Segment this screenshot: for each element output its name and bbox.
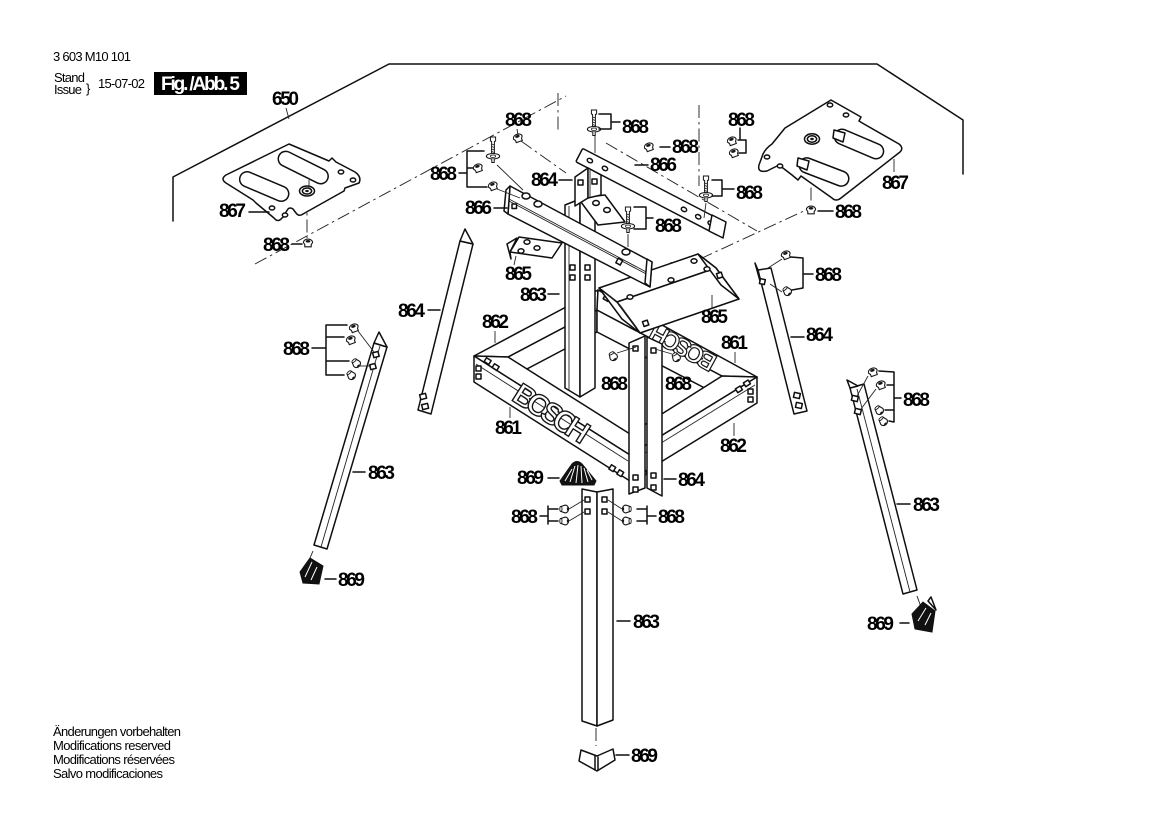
svg-text:862: 862: [720, 436, 747, 457]
svg-text:868: 868: [601, 374, 628, 395]
svg-text:869: 869: [867, 614, 894, 635]
svg-text:Änderungen vorbehalten: Änderungen vorbehalten: [53, 724, 181, 739]
svg-text:868: 868: [622, 117, 649, 138]
svg-text:863: 863: [633, 612, 660, 633]
svg-text:866: 866: [650, 155, 677, 176]
svg-text:869: 869: [338, 570, 365, 591]
svg-text:868: 868: [728, 110, 755, 131]
svg-text:Modifications reserved: Modifications reserved: [53, 738, 171, 753]
svg-text:Fig. /Abb. 5: Fig. /Abb. 5: [161, 74, 240, 95]
svg-text:868: 868: [283, 339, 310, 360]
svg-text:868: 868: [505, 110, 532, 131]
svg-text:864: 864: [806, 325, 833, 346]
svg-text:862: 862: [482, 312, 509, 333]
svg-text:868: 868: [815, 265, 842, 286]
svg-text:861: 861: [495, 418, 522, 439]
svg-text:650: 650: [272, 89, 299, 110]
svg-text:863: 863: [520, 285, 547, 306]
svg-text:868: 868: [665, 374, 692, 395]
svg-text:868: 868: [430, 164, 457, 185]
svg-text:868: 868: [658, 507, 685, 528]
svg-text:868: 868: [903, 390, 930, 411]
svg-text:868: 868: [263, 235, 290, 256]
svg-text:863: 863: [368, 463, 395, 484]
svg-text:Salvo modificaciones: Salvo modificaciones: [53, 766, 164, 781]
svg-text:869: 869: [631, 746, 658, 767]
svg-text:869: 869: [517, 468, 544, 489]
svg-text:868: 868: [655, 216, 682, 237]
svg-text:864: 864: [398, 301, 425, 322]
svg-text:865: 865: [701, 307, 728, 328]
svg-text:867: 867: [219, 201, 246, 222]
svg-text:868: 868: [835, 202, 862, 223]
svg-text:863: 863: [913, 495, 940, 516]
svg-text:864: 864: [531, 170, 558, 191]
svg-text:Modifications réservées: Modifications réservées: [53, 752, 176, 767]
svg-text:861: 861: [721, 333, 748, 354]
svg-text:868: 868: [736, 183, 763, 204]
svg-text:864: 864: [678, 470, 705, 491]
svg-text:868: 868: [511, 507, 538, 528]
svg-text:866: 866: [465, 198, 492, 219]
svg-text:}: }: [86, 81, 91, 96]
svg-text:Issue: Issue: [54, 82, 82, 97]
svg-text:867: 867: [882, 173, 909, 194]
svg-text:15-07-02: 15-07-02: [98, 76, 145, 91]
svg-text:3 603 M10 101: 3 603 M10 101: [53, 49, 131, 64]
svg-text:865: 865: [505, 264, 532, 285]
